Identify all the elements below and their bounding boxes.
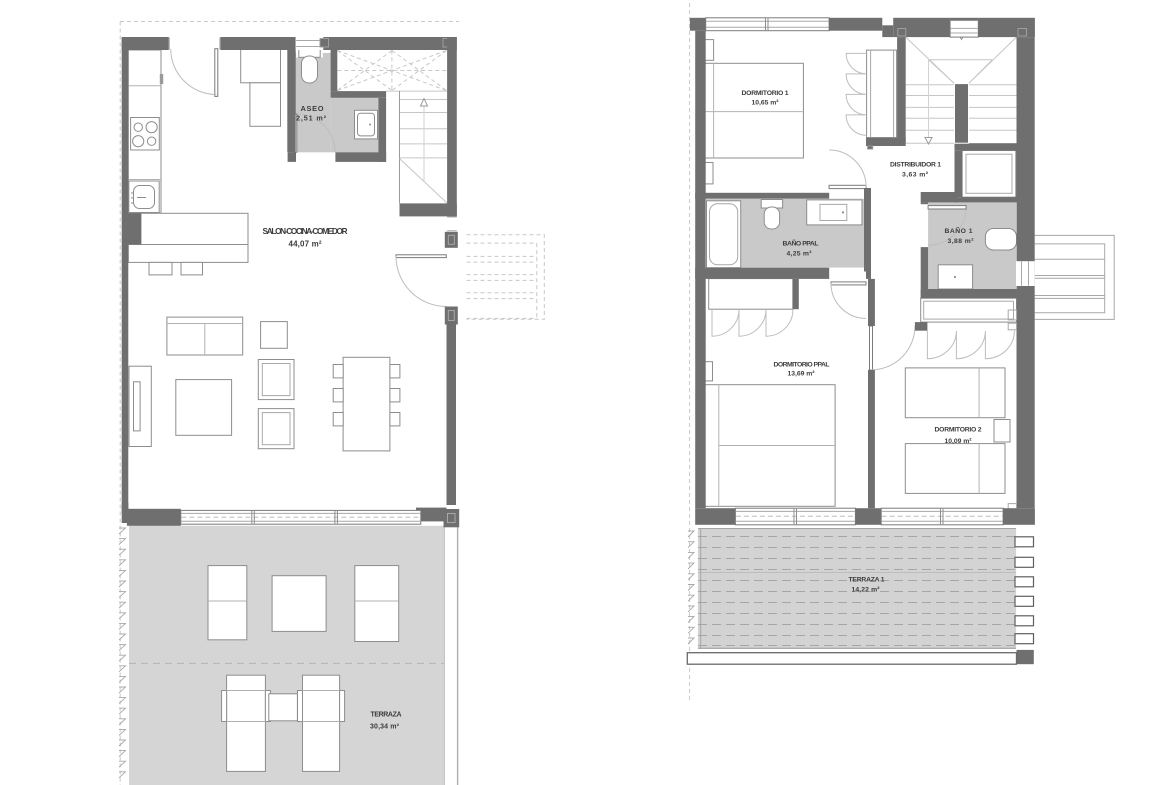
svg-text:3,88 m²: 3,88 m² bbox=[948, 238, 975, 245]
svg-text:2,51 m²: 2,51 m² bbox=[296, 114, 327, 123]
svg-text:30,34 m²: 30,34 m² bbox=[370, 724, 400, 731]
svg-text:10,65 m²: 10,65 m² bbox=[752, 100, 780, 107]
svg-text:BAÑO PPAL: BAÑO PPAL bbox=[783, 239, 819, 248]
svg-text:4,25 m²: 4,25 m² bbox=[787, 251, 813, 258]
svg-text:44,07 m²: 44,07 m² bbox=[289, 240, 322, 249]
svg-text:TERRAZA: TERRAZA bbox=[371, 712, 402, 719]
svg-text:14,22 m²: 14,22 m² bbox=[852, 587, 881, 594]
svg-text:13,69 m²: 13,69 m² bbox=[788, 371, 816, 378]
svg-text:DORMITORIO 2: DORMITORIO 2 bbox=[935, 427, 982, 434]
svg-text:TERRAZA 1: TERRAZA 1 bbox=[849, 577, 885, 584]
svg-text:SALON-COCINA-COMEDOR: SALON-COCINA-COMEDOR bbox=[263, 227, 348, 236]
svg-text:3,63 m²: 3,63 m² bbox=[902, 172, 929, 179]
svg-text:ASEO: ASEO bbox=[301, 104, 324, 113]
svg-text:BAÑO 1: BAÑO 1 bbox=[945, 226, 973, 235]
svg-text:DORMITORIO 1: DORMITORIO 1 bbox=[742, 90, 789, 97]
svg-text:10,09 m²: 10,09 m² bbox=[945, 438, 973, 445]
svg-text:DORMITORIO PPAL: DORMITORIO PPAL bbox=[774, 362, 830, 369]
svg-text:DISTRIBUIDOR 1: DISTRIBUIDOR 1 bbox=[890, 162, 941, 169]
